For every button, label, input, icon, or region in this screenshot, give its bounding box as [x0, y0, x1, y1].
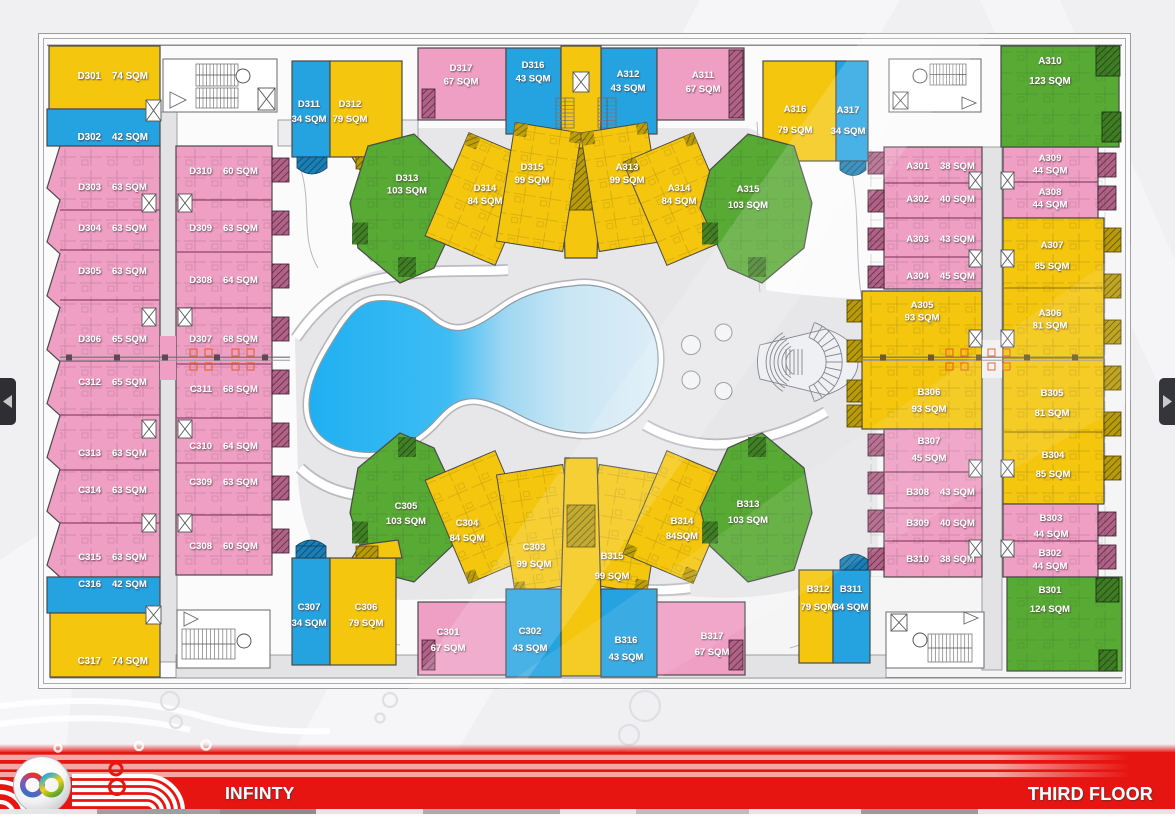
svg-text:65 SQM: 65 SQM — [112, 334, 147, 345]
svg-text:99 SQM: 99 SQM — [610, 175, 645, 186]
svg-text:A304: A304 — [906, 271, 929, 282]
svg-text:D315: D315 — [521, 162, 544, 173]
svg-text:D309: D309 — [189, 223, 212, 234]
svg-text:67 SQM: 67 SQM — [686, 84, 721, 95]
svg-text:D306: D306 — [78, 334, 101, 345]
svg-text:B304: B304 — [1042, 450, 1065, 461]
svg-text:A310: A310 — [1038, 56, 1062, 67]
svg-text:D304: D304 — [78, 223, 101, 234]
svg-text:60 SQM: 60 SQM — [223, 166, 258, 177]
svg-text:63 SQM: 63 SQM — [112, 448, 147, 459]
svg-text:B302: B302 — [1039, 548, 1062, 559]
svg-text:B301: B301 — [1039, 585, 1062, 596]
svg-text:C306: C306 — [355, 602, 378, 613]
svg-text:B310: B310 — [906, 554, 929, 565]
svg-text:A314: A314 — [668, 183, 691, 194]
svg-text:C317: C317 — [78, 656, 102, 667]
svg-text:68 SQM: 68 SQM — [223, 334, 258, 345]
svg-text:45 SQM: 45 SQM — [940, 271, 975, 282]
svg-text:79 SQM: 79 SQM — [349, 618, 384, 629]
svg-text:B311: B311 — [840, 584, 863, 595]
svg-text:A307: A307 — [1041, 240, 1064, 251]
svg-text:42 SQM: 42 SQM — [112, 132, 148, 143]
svg-text:A302: A302 — [906, 194, 929, 205]
svg-text:43 SQM: 43 SQM — [940, 234, 975, 245]
svg-text:C313: C313 — [78, 448, 101, 459]
svg-text:63 SQM: 63 SQM — [223, 223, 258, 234]
svg-text:64 SQM: 64 SQM — [223, 441, 258, 452]
svg-text:38 SQM: 38 SQM — [940, 554, 975, 565]
svg-text:74 SQM: 74 SQM — [112, 71, 148, 82]
svg-text:123 SQM: 123 SQM — [1029, 76, 1070, 87]
svg-text:C304: C304 — [456, 518, 479, 529]
svg-text:B313: B313 — [737, 499, 760, 510]
svg-text:43 SQM: 43 SQM — [611, 83, 646, 94]
svg-text:40 SQM: 40 SQM — [940, 194, 975, 205]
svg-text:84SQM: 84SQM — [666, 531, 698, 542]
svg-text:34 SQM: 34 SQM — [292, 618, 327, 629]
svg-text:44 SQM: 44 SQM — [1033, 561, 1068, 572]
svg-text:D302: D302 — [78, 132, 102, 143]
svg-text:D307: D307 — [189, 334, 212, 345]
svg-text:C312: C312 — [78, 377, 101, 388]
svg-text:C307: C307 — [298, 602, 321, 613]
svg-text:C316: C316 — [78, 579, 101, 590]
svg-text:D308: D308 — [189, 275, 212, 286]
svg-text:C310: C310 — [189, 441, 212, 452]
svg-text:38 SQM: 38 SQM — [940, 161, 975, 172]
svg-text:44 SQM: 44 SQM — [1033, 166, 1068, 177]
svg-text:65 SQM: 65 SQM — [112, 377, 147, 388]
svg-text:42 SQM: 42 SQM — [112, 579, 147, 590]
svg-text:74 SQM: 74 SQM — [112, 656, 148, 667]
svg-text:60 SQM: 60 SQM — [223, 541, 258, 552]
svg-text:A305: A305 — [911, 300, 934, 311]
svg-text:A309: A309 — [1039, 153, 1062, 164]
svg-text:D: D — [240, 71, 247, 81]
svg-text:D311: D311 — [298, 99, 321, 110]
svg-text:103 SQM: 103 SQM — [386, 516, 426, 527]
svg-text:C311: C311 — [190, 384, 213, 395]
svg-text:D301: D301 — [78, 71, 102, 82]
svg-text:D310: D310 — [189, 166, 212, 177]
svg-text:63 SQM: 63 SQM — [112, 552, 147, 563]
svg-text:63 SQM: 63 SQM — [112, 266, 147, 277]
svg-text:85 SQM: 85 SQM — [1035, 261, 1070, 272]
svg-text:67 SQM: 67 SQM — [444, 77, 479, 88]
svg-text:A316: A316 — [784, 104, 807, 115]
svg-text:44 SQM: 44 SQM — [1034, 529, 1069, 540]
svg-text:A308: A308 — [1039, 187, 1062, 198]
svg-text:43 SQM: 43 SQM — [516, 74, 551, 85]
svg-text:B: B — [917, 635, 924, 645]
svg-text:INFINTY: INFINTY — [225, 783, 295, 803]
svg-text:D314: D314 — [474, 183, 497, 194]
svg-text:THIRD FLOOR: THIRD FLOOR — [1028, 784, 1153, 804]
svg-text:63 SQM: 63 SQM — [112, 485, 147, 496]
svg-text:79 SQM: 79 SQM — [801, 602, 836, 613]
svg-text:A303: A303 — [906, 234, 929, 245]
svg-text:84 SQM: 84 SQM — [468, 196, 503, 207]
svg-text:34 SQM: 34 SQM — [834, 602, 869, 613]
svg-text:34 SQM: 34 SQM — [292, 114, 327, 125]
svg-text:79 SQM: 79 SQM — [333, 114, 368, 125]
svg-text:C315: C315 — [78, 552, 101, 563]
svg-text:C314: C314 — [78, 485, 101, 496]
svg-text:124 SQM: 124 SQM — [1030, 604, 1070, 615]
svg-text:85 SQM: 85 SQM — [1036, 469, 1071, 480]
svg-text:44 SQM: 44 SQM — [1033, 200, 1068, 211]
svg-text:C309: C309 — [189, 477, 212, 488]
svg-text:D312: D312 — [339, 99, 362, 110]
svg-text:A313: A313 — [616, 162, 639, 173]
svg-text:A312: A312 — [617, 69, 640, 80]
svg-text:B303: B303 — [1040, 513, 1063, 524]
svg-text:C: C — [241, 636, 248, 646]
svg-text:40 SQM: 40 SQM — [940, 518, 975, 529]
svg-text:68 SQM: 68 SQM — [223, 384, 258, 395]
svg-text:99 SQM: 99 SQM — [515, 175, 550, 186]
svg-text:93 SQM: 93 SQM — [905, 313, 940, 324]
svg-text:63 SQM: 63 SQM — [223, 477, 258, 488]
svg-text:D316: D316 — [522, 60, 545, 71]
svg-text:63 SQM: 63 SQM — [112, 182, 147, 193]
svg-text:C308: C308 — [189, 541, 212, 552]
svg-text:A311: A311 — [692, 70, 715, 81]
svg-text:84 SQM: 84 SQM — [662, 196, 697, 207]
svg-text:A301: A301 — [906, 161, 929, 172]
svg-text:D305: D305 — [78, 266, 101, 277]
svg-text:64 SQM: 64 SQM — [223, 275, 258, 286]
svg-text:84 SQM: 84 SQM — [450, 533, 485, 544]
svg-text:63 SQM: 63 SQM — [112, 223, 147, 234]
svg-text:B314: B314 — [671, 516, 694, 527]
svg-text:D317: D317 — [450, 63, 473, 74]
svg-text:D313: D313 — [396, 173, 419, 184]
svg-text:C305: C305 — [395, 501, 418, 512]
svg-text:D303: D303 — [78, 182, 101, 193]
svg-text:103 SQM: 103 SQM — [387, 186, 427, 197]
